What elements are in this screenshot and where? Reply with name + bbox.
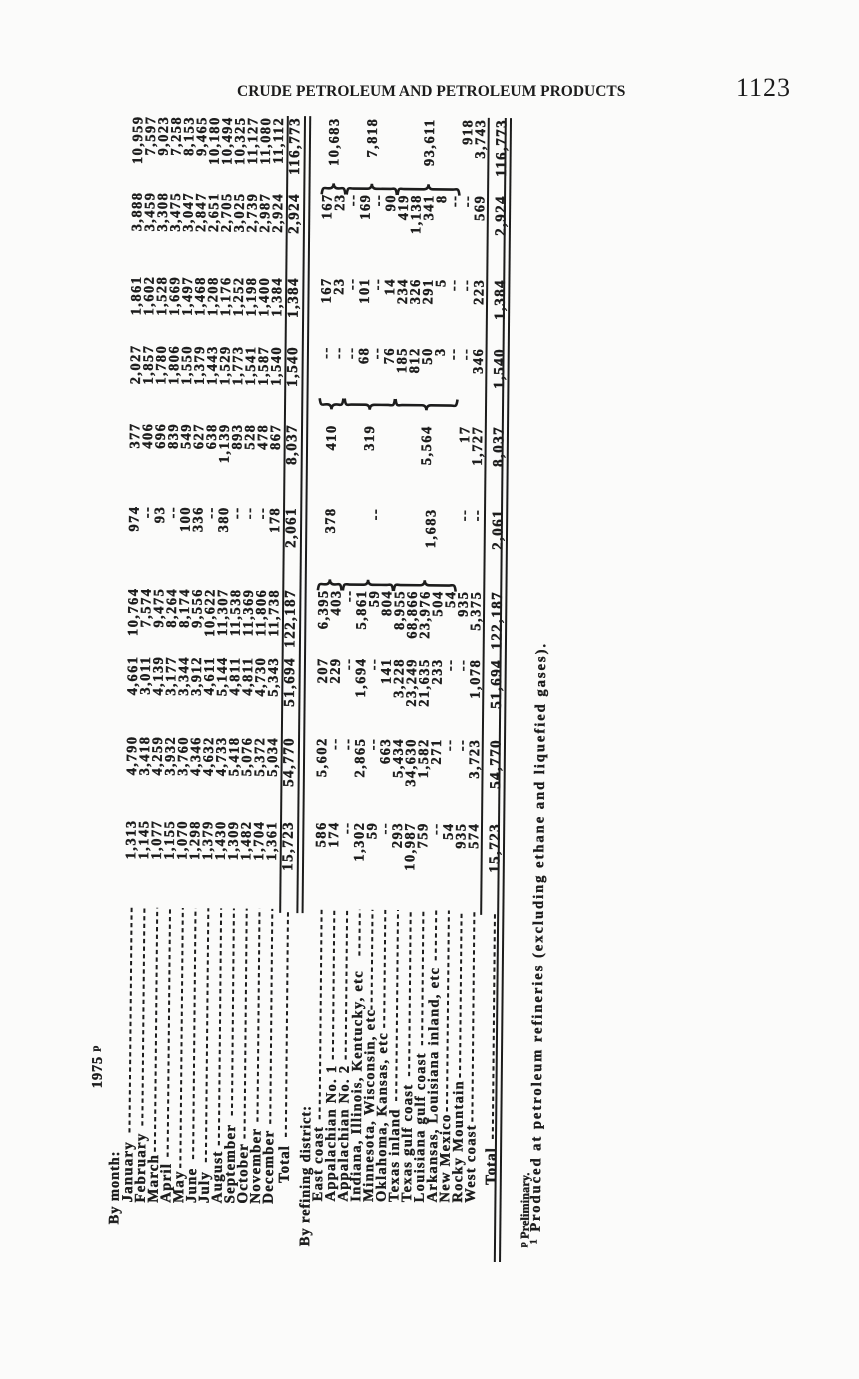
svg-text:8,037: 8,037 bbox=[490, 426, 507, 467]
svg-text:15,723: 15,723 bbox=[279, 821, 296, 871]
svg-text:10,683: 10,683 bbox=[326, 117, 342, 166]
svg-text:569: 569 bbox=[472, 195, 488, 221]
svg-text:122,187: 122,187 bbox=[488, 591, 506, 650]
svg-text:2,061: 2,061 bbox=[489, 509, 506, 550]
svg-text:5,343: 5,343 bbox=[265, 657, 281, 697]
svg-text:Total: Total bbox=[276, 1145, 292, 1183]
svg-text:574: 574 bbox=[466, 823, 482, 849]
svg-text:5,034: 5,034 bbox=[264, 737, 280, 777]
svg-text:11,112: 11,112 bbox=[270, 117, 286, 164]
svg-text:5,564: 5,564 bbox=[418, 425, 434, 465]
svg-text:116,773: 116,773 bbox=[492, 119, 510, 177]
svg-text:1,078: 1,078 bbox=[467, 659, 483, 699]
svg-text:7,818: 7,818 bbox=[364, 118, 380, 158]
svg-text:11,738: 11,738 bbox=[266, 589, 282, 637]
svg-text:1,384: 1,384 bbox=[269, 277, 285, 317]
svg-text:1 Produced at petroleum refine: 1 Produced at petroleum refineries (excl… bbox=[527, 642, 549, 1245]
svg-text:Total: Total bbox=[483, 1147, 499, 1185]
svg-text:1,384: 1,384 bbox=[491, 279, 508, 320]
svg-text:1,384: 1,384 bbox=[284, 277, 301, 318]
svg-text:410: 410 bbox=[323, 424, 339, 450]
svg-text:93,611: 93,611 bbox=[421, 118, 437, 166]
svg-text:54,770: 54,770 bbox=[487, 739, 504, 789]
svg-text:1,540: 1,540 bbox=[283, 346, 300, 387]
svg-text:1975 p: 1975 p bbox=[89, 1045, 105, 1088]
svg-text:51,694: 51,694 bbox=[487, 659, 504, 709]
svg-text:223: 223 bbox=[471, 279, 487, 305]
svg-text:116,773: 116,773 bbox=[285, 117, 303, 175]
svg-text:1,683: 1,683 bbox=[423, 508, 439, 548]
svg-text:378: 378 bbox=[322, 507, 338, 533]
svg-text:346: 346 bbox=[470, 348, 486, 374]
svg-text:--: -- bbox=[469, 509, 485, 522]
svg-text:51,694: 51,694 bbox=[280, 657, 297, 707]
svg-text:West coast: West coast bbox=[462, 1124, 479, 1203]
svg-text:3,723: 3,723 bbox=[466, 739, 482, 779]
svg-text:15,723: 15,723 bbox=[486, 823, 503, 873]
svg-text:2,924: 2,924 bbox=[492, 195, 509, 236]
svg-text:2,924: 2,924 bbox=[285, 193, 302, 234]
svg-text:1,727: 1,727 bbox=[469, 426, 485, 466]
svg-text:2,061: 2,061 bbox=[282, 507, 299, 548]
svg-text:2,924: 2,924 bbox=[270, 193, 286, 233]
svg-text:178: 178 bbox=[267, 507, 283, 533]
svg-text:3,743: 3,743 bbox=[472, 119, 488, 159]
svg-text:--: -- bbox=[367, 508, 383, 521]
svg-text:8,037: 8,037 bbox=[283, 424, 300, 465]
svg-text:867: 867 bbox=[267, 424, 283, 450]
svg-text:1,540: 1,540 bbox=[268, 346, 284, 386]
svg-text:1,361: 1,361 bbox=[263, 821, 279, 861]
svg-text:122,187: 122,187 bbox=[281, 589, 299, 648]
svg-text:1,540: 1,540 bbox=[490, 348, 507, 389]
svg-text:5,375: 5,375 bbox=[468, 591, 484, 631]
svg-text:54,770: 54,770 bbox=[280, 737, 297, 787]
svg-text:December: December bbox=[260, 1130, 277, 1204]
svg-text:319: 319 bbox=[361, 425, 377, 451]
